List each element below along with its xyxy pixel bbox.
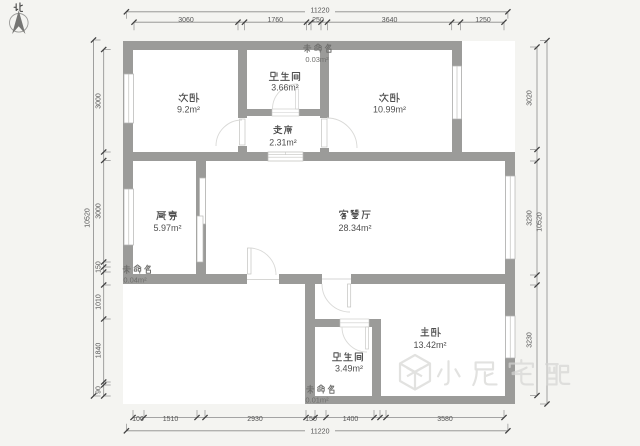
svg-text:1400: 1400 xyxy=(343,416,359,423)
svg-text:28.34m²: 28.34m² xyxy=(338,223,371,233)
svg-text:10520: 10520 xyxy=(537,212,544,232)
svg-text:3020: 3020 xyxy=(527,90,534,106)
svg-text:2930: 2930 xyxy=(247,416,263,423)
svg-text:1760: 1760 xyxy=(268,17,284,24)
svg-text:0.03m²: 0.03m² xyxy=(305,55,329,64)
svg-text:3.49m²: 3.49m² xyxy=(335,364,363,374)
svg-text:150: 150 xyxy=(95,261,102,273)
svg-text:10520: 10520 xyxy=(85,208,92,228)
svg-text:100: 100 xyxy=(132,416,144,423)
svg-text:150: 150 xyxy=(305,416,317,423)
svg-text:0.04m²: 0.04m² xyxy=(123,276,147,285)
svg-text:90: 90 xyxy=(95,386,102,394)
svg-text:3290: 3290 xyxy=(527,210,534,226)
svg-text:3000: 3000 xyxy=(95,203,102,219)
svg-text:3230: 3230 xyxy=(527,332,534,348)
svg-text:10.99m²: 10.99m² xyxy=(373,104,406,114)
svg-text:13.42m²: 13.42m² xyxy=(413,340,446,350)
svg-text:5.97m²: 5.97m² xyxy=(153,223,181,233)
svg-text:250: 250 xyxy=(312,17,324,24)
svg-text:1010: 1010 xyxy=(95,294,102,310)
svg-text:2.31m²: 2.31m² xyxy=(269,138,296,148)
svg-text:1510: 1510 xyxy=(163,416,179,423)
svg-text:1840: 1840 xyxy=(95,343,102,359)
svg-text:0.01m²: 0.01m² xyxy=(305,396,329,405)
svg-text:1250: 1250 xyxy=(475,17,491,24)
svg-text:3.66m²: 3.66m² xyxy=(271,82,298,92)
svg-text:3060: 3060 xyxy=(178,17,194,24)
svg-text:3580: 3580 xyxy=(437,416,453,423)
svg-text:3000: 3000 xyxy=(95,93,102,109)
svg-text:11220: 11220 xyxy=(311,429,330,436)
svg-text:11220: 11220 xyxy=(311,8,330,15)
svg-text:3640: 3640 xyxy=(382,17,398,24)
svg-text:9.2m²: 9.2m² xyxy=(177,104,200,114)
